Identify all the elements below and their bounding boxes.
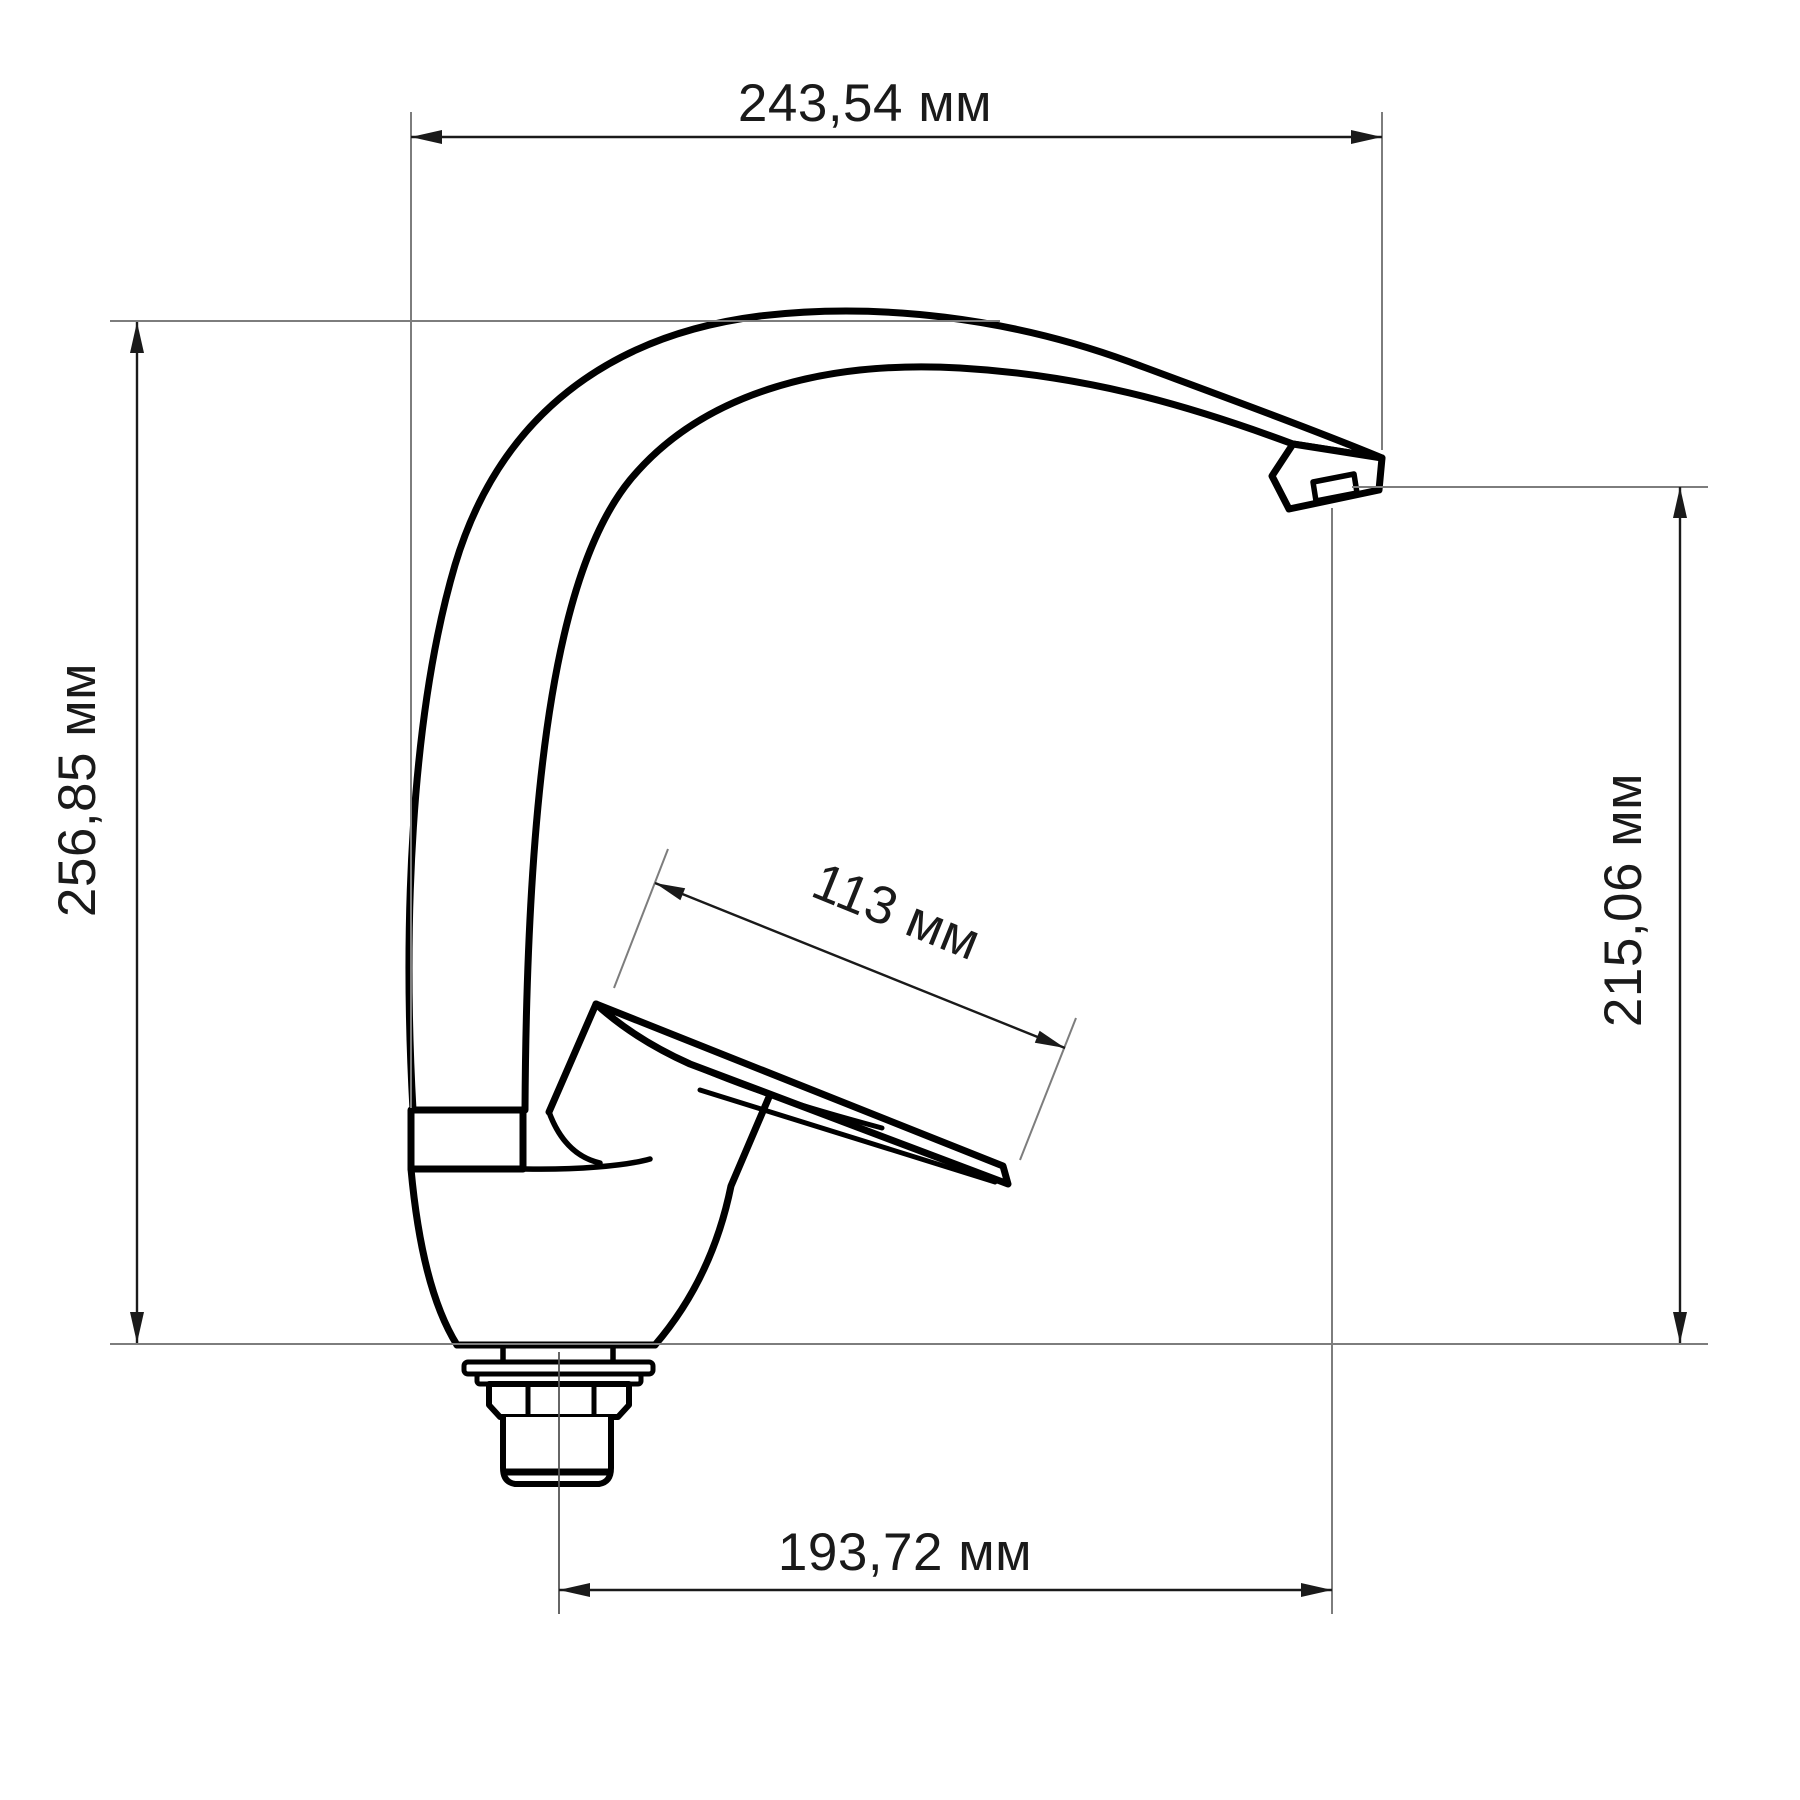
arrowhead-left bbox=[559, 1583, 590, 1597]
dimension-label-spout-outlet-height: 215,06 мм bbox=[1594, 773, 1653, 1027]
dimension-label-overall-height: 256,85 мм bbox=[48, 663, 107, 917]
swivel-collar bbox=[411, 1110, 523, 1169]
technical-drawing-page: 243,54 мм 256,85 мм 215,06 мм 113 мм 193… bbox=[0, 0, 1800, 1800]
arrowhead-left bbox=[655, 883, 685, 900]
dimension-overall-height: 256,85 мм bbox=[48, 322, 144, 1343]
aerator-notch-icon bbox=[1313, 474, 1357, 501]
cartridge-front-curve bbox=[549, 1112, 600, 1163]
arrowhead-right bbox=[1035, 1031, 1065, 1048]
arrowhead-right bbox=[1351, 130, 1382, 144]
arrowhead-left bbox=[411, 130, 442, 144]
ext-handle-left bbox=[614, 849, 668, 988]
dimension-spout-reach: 193,72 мм bbox=[559, 1523, 1332, 1597]
arrowhead-top bbox=[130, 322, 144, 353]
dimension-label-overall-width: 243,54 мм bbox=[738, 74, 992, 133]
handle-lever bbox=[596, 1004, 1008, 1184]
body-cone-left-edge bbox=[411, 1169, 457, 1345]
spout-tube bbox=[409, 311, 1382, 1110]
dimension-label-spout-reach: 193,72 мм bbox=[778, 1523, 1032, 1582]
arrowhead-bottom bbox=[130, 1312, 144, 1343]
dimension-spout-outlet-height: 215,06 мм bbox=[1594, 487, 1687, 1343]
arrowhead-right bbox=[1301, 1583, 1332, 1597]
dimension-overall-width: 243,54 мм bbox=[411, 74, 1382, 144]
dimension-handle-length: 113 мм bbox=[655, 852, 1065, 1048]
arrowhead-top bbox=[1673, 487, 1687, 518]
faucet-technical-drawing: 243,54 мм 256,85 мм 215,06 мм 113 мм 193… bbox=[0, 0, 1800, 1800]
cartridge-left-edge bbox=[549, 1004, 596, 1112]
body-cone-right-edge bbox=[655, 1090, 772, 1345]
arrowhead-bottom bbox=[1673, 1312, 1687, 1343]
